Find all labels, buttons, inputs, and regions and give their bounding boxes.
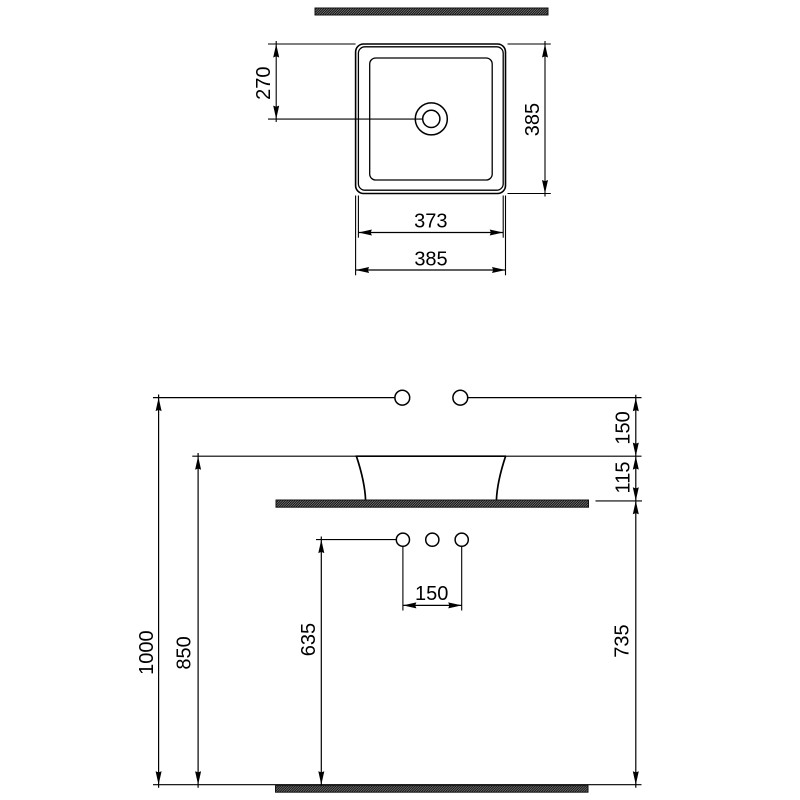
svg-text:735: 735 <box>612 624 634 657</box>
svg-text:270: 270 <box>253 67 275 100</box>
svg-text:850: 850 <box>174 636 196 669</box>
svg-text:115: 115 <box>613 462 635 494</box>
svg-text:385: 385 <box>414 248 447 270</box>
svg-text:150: 150 <box>612 411 634 444</box>
svg-text:150: 150 <box>415 583 448 605</box>
svg-text:385: 385 <box>522 103 544 136</box>
svg-text:373: 373 <box>414 211 447 233</box>
svg-text:1000: 1000 <box>136 630 158 675</box>
svg-text:635: 635 <box>298 623 320 656</box>
